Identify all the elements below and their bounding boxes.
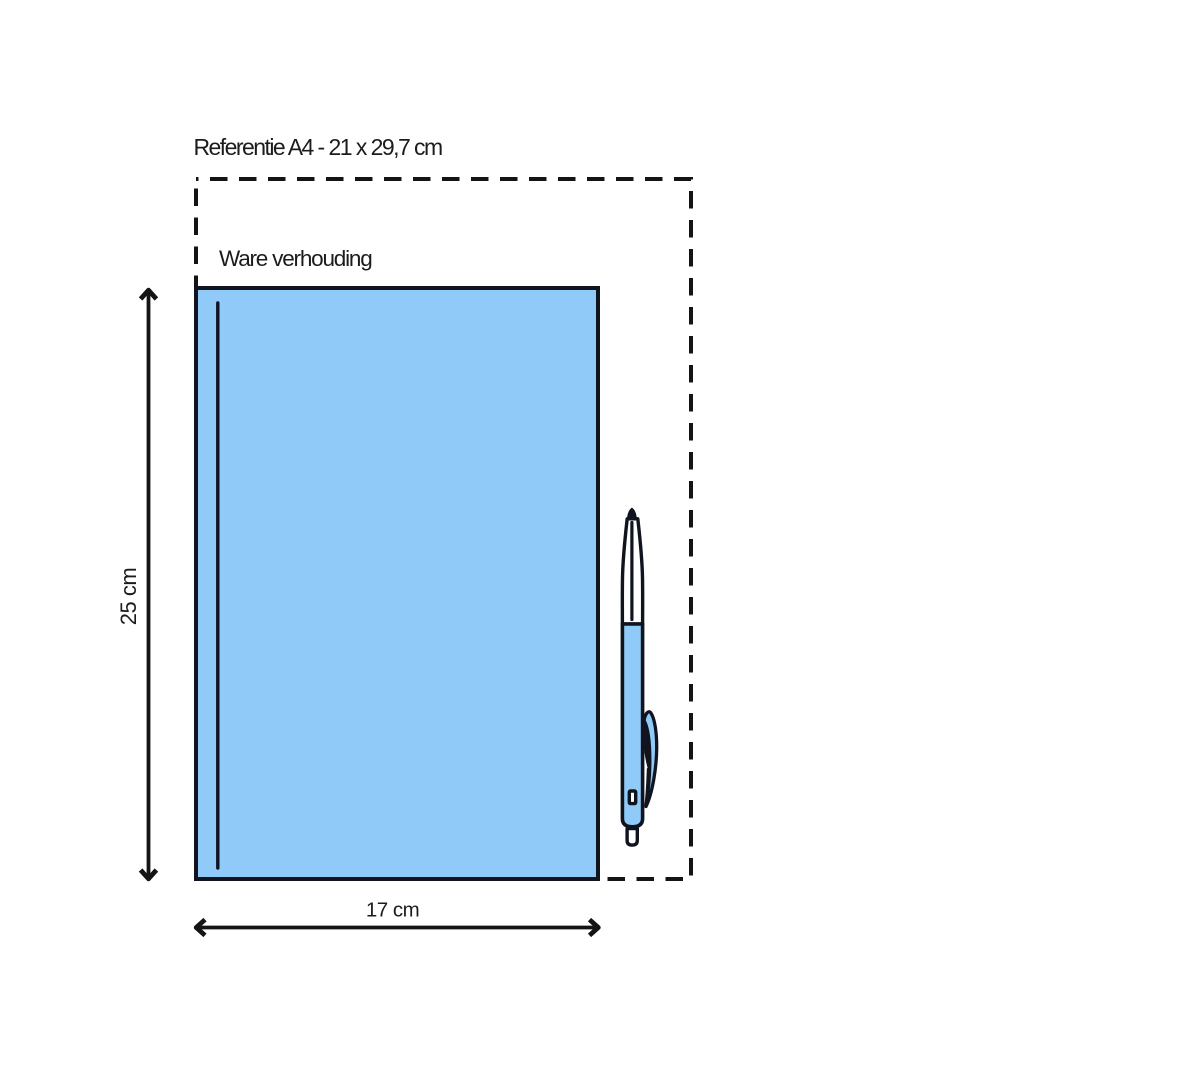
svg-text:25 cm: 25 cm (116, 568, 141, 625)
svg-text:Ware verhouding: Ware verhouding (219, 246, 372, 271)
svg-text:Referentie A4 - 21 x 29,7 cm: Referentie A4 - 21 x 29,7 cm (194, 134, 442, 160)
svg-text:17 cm: 17 cm (366, 899, 419, 922)
